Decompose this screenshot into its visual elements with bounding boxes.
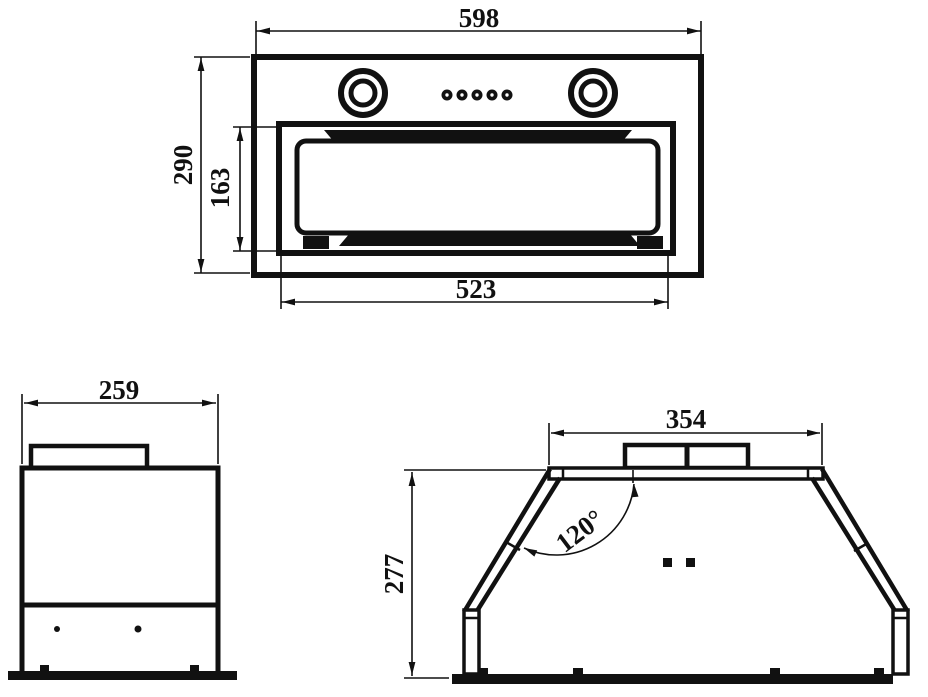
arrow-down-icon	[237, 237, 244, 250]
arrow-left-icon	[25, 400, 38, 407]
filter-bottom-bar	[339, 233, 640, 246]
screw-dot	[135, 626, 142, 633]
screw-dot	[663, 558, 672, 567]
arrow-right-icon	[202, 400, 215, 407]
duct-connector	[625, 445, 748, 468]
filter-foot-right	[637, 236, 663, 249]
technical-drawing-page: 598 290 163 523	[0, 0, 928, 697]
dim-label-259: 259	[99, 375, 140, 405]
filter-foot-left	[303, 236, 329, 249]
arrow-left-icon	[551, 430, 564, 437]
arrow-right-icon	[654, 299, 667, 306]
slant-right	[812, 469, 908, 674]
flange-nub	[573, 668, 583, 674]
arrow-up-icon	[198, 58, 205, 71]
flange-nub	[770, 668, 780, 674]
knob-left	[341, 71, 385, 115]
flange-nub	[40, 665, 49, 671]
arrow-down-icon	[198, 259, 205, 272]
hood-body-side	[22, 468, 218, 674]
range-hood-dimension-drawing: 598 290 163 523	[0, 0, 928, 697]
base-flange	[452, 668, 893, 684]
dim-label-290: 290	[168, 145, 198, 186]
arrow-up-icon	[237, 128, 244, 141]
screw-dot	[54, 626, 60, 632]
top-panel	[549, 468, 823, 479]
angle-label-120: 120°	[550, 503, 609, 558]
dim-label-523: 523	[456, 274, 497, 304]
filter-glass	[297, 141, 658, 233]
arrow-right-icon	[687, 28, 700, 35]
arrow-down-icon	[409, 662, 416, 675]
arrow-up-icon	[409, 473, 416, 486]
dim-label-354: 354	[666, 404, 707, 434]
slant-left	[464, 469, 560, 674]
bottom-flange	[8, 671, 237, 680]
flange-nub	[478, 668, 488, 674]
leg-right	[893, 610, 908, 674]
leg-left	[464, 610, 479, 674]
screw-dot	[686, 558, 695, 567]
arrow-arc-bottom-icon	[523, 545, 538, 557]
dim-label-598: 598	[459, 3, 500, 33]
flange-nub	[874, 668, 884, 674]
dim-label-277: 277	[379, 554, 409, 595]
filter-top-bar	[324, 130, 632, 143]
knob-right	[571, 71, 615, 115]
arrow-right-icon	[807, 430, 820, 437]
dim-label-163: 163	[205, 168, 235, 209]
front-view: 598 290 163 523	[168, 3, 701, 309]
arrow-left-icon	[282, 299, 295, 306]
profile-view: 354 277 120°	[379, 404, 908, 684]
grease-filter-panel	[279, 124, 673, 253]
arrow-left-icon	[257, 28, 270, 35]
side-view: 259	[8, 375, 237, 680]
dimension-overall-width: 598	[256, 3, 701, 54]
flange-nub	[190, 665, 199, 671]
